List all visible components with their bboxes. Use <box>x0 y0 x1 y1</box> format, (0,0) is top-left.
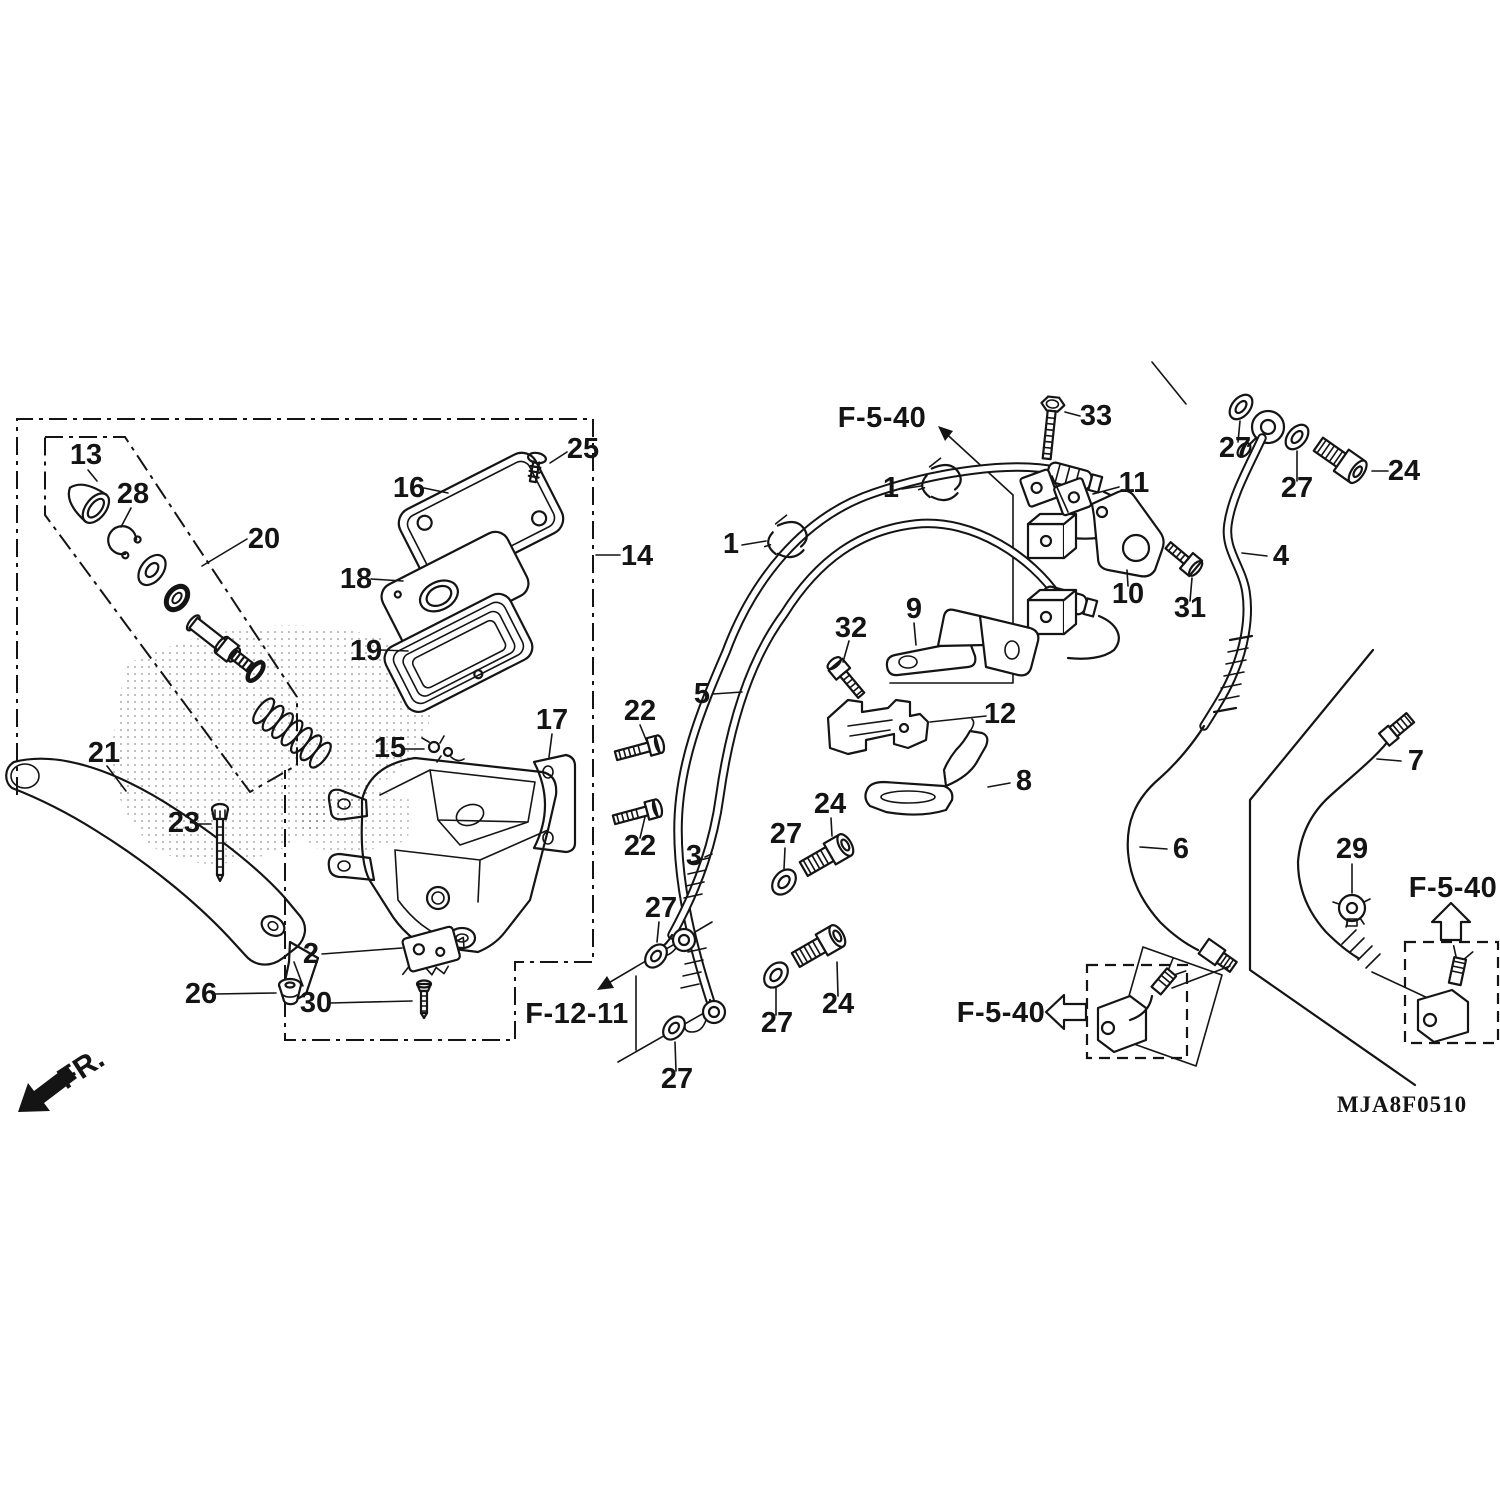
part-callout-27-33[interactable]: 27 <box>645 892 677 924</box>
part-callout-14-5[interactable]: 14 <box>621 540 653 572</box>
bracket-10-drawing <box>1092 491 1164 577</box>
leader-line <box>202 539 247 566</box>
washer-27-d <box>659 1012 690 1043</box>
bolt-31-drawing <box>1162 538 1205 579</box>
leader-line <box>550 452 567 463</box>
pipe-7-top-fitting <box>1379 712 1415 746</box>
master-cylinder-body <box>362 758 557 952</box>
part-callout-18-6[interactable]: 18 <box>340 563 372 595</box>
part-callout-22-10[interactable]: 22 <box>624 695 656 727</box>
joint-block-upper <box>1028 514 1076 558</box>
part-callout-7-41[interactable]: 7 <box>1408 745 1424 777</box>
parts-diagram-page: FR. MJA8F0510 13282016251418191715222221… <box>0 0 1500 1500</box>
diagram-code: MJA8F0510 <box>1337 1092 1467 1117</box>
part-callout-9-21[interactable]: 9 <box>906 593 922 625</box>
sight-glass-inner <box>432 892 444 904</box>
leader-line <box>713 692 742 694</box>
part-callout-28-1[interactable]: 28 <box>117 478 149 510</box>
leader-line <box>831 818 832 836</box>
banjo-detail-left <box>1098 958 1187 1052</box>
leader-line <box>1065 412 1080 416</box>
part-callout-16-3[interactable]: 16 <box>393 472 425 504</box>
oil-bolt-24-mid <box>798 832 857 880</box>
brake-hose-4 <box>1204 438 1262 726</box>
joint-block-lower <box>1028 590 1076 634</box>
brake-pipe-6 <box>1128 726 1204 950</box>
part-callout-4-32[interactable]: 4 <box>1273 540 1289 572</box>
f540-mid-left-block-arrow-icon <box>1046 995 1086 1029</box>
lug-hole-lower <box>338 861 350 871</box>
part-callout-24-35[interactable]: 24 <box>814 788 846 820</box>
bolt-32-drawing <box>825 654 868 701</box>
part-callout-24-37[interactable]: 24 <box>822 988 854 1020</box>
pipe-7-spring-ticks <box>1342 930 1380 968</box>
lever-pivot-hole <box>258 912 288 940</box>
part-callout-8-24[interactable]: 8 <box>1016 765 1032 797</box>
leader-line <box>549 734 552 757</box>
screw-30-drawing <box>417 981 431 1019</box>
leader-line <box>784 848 785 869</box>
reservoir-port <box>453 801 486 829</box>
primary-seal-drawing <box>162 582 192 614</box>
top-right-guide-line <box>1152 362 1186 404</box>
hose-5-banjo-end <box>685 1000 725 1032</box>
part-callout-24-31[interactable]: 24 <box>1388 455 1420 487</box>
leader-line <box>1377 759 1401 761</box>
part-callout-19-7[interactable]: 19 <box>350 635 382 667</box>
leader-line <box>930 716 986 722</box>
banjo-detail-right <box>1418 946 1473 1042</box>
washer-27-b <box>1281 420 1313 453</box>
leader-line <box>1140 847 1167 849</box>
part-callout-33-25[interactable]: 33 <box>1080 400 1112 432</box>
clamp-screw-22-upper <box>614 734 666 764</box>
leader-line <box>1242 553 1267 556</box>
part-callout-27-36[interactable]: 27 <box>761 1007 793 1039</box>
oil-bolt-24-top <box>1311 434 1370 486</box>
clip-29-drawing <box>1333 895 1370 927</box>
part-callout-5-19[interactable]: 5 <box>694 678 710 710</box>
part-callout-27-38[interactable]: 27 <box>661 1063 693 1095</box>
leader-line <box>322 948 402 954</box>
part-callout-21-12[interactable]: 21 <box>88 737 120 769</box>
figure-ref-f-5-40-0[interactable]: F-5-40 <box>838 402 926 434</box>
figure-ref-f-5-40-3[interactable]: F-5-40 <box>1409 872 1497 904</box>
lever-tip <box>11 764 39 788</box>
washer-27-a <box>1225 390 1257 423</box>
part-callout-25-4[interactable]: 25 <box>567 433 599 465</box>
leader-line <box>215 993 276 994</box>
lower-right-boundary-line <box>1250 650 1415 1085</box>
washer-drawing <box>133 550 171 590</box>
f540-right-up-block-arrow-icon <box>1432 903 1470 940</box>
part-callout-27-29[interactable]: 27 <box>1219 432 1251 464</box>
shading-texture-2 <box>300 790 410 851</box>
part-callout-2-14[interactable]: 2 <box>303 938 319 970</box>
part-callout-30-16[interactable]: 30 <box>300 987 332 1019</box>
figure-ref-f-5-40-2[interactable]: F-5-40 <box>957 997 1045 1029</box>
leader-line <box>914 623 916 645</box>
lever-pivot-hole-inner <box>267 920 280 932</box>
parts-diagram-canvas: FR. MJA8F0510 13282016251418191715222221… <box>0 0 1500 1500</box>
leader-line <box>657 922 659 942</box>
bolt-33-drawing <box>1036 396 1065 460</box>
fr-direction-indicator: FR. <box>18 1042 110 1112</box>
figure-ref-f-12-11-1[interactable]: F-12-11 <box>525 998 628 1030</box>
clamp-12-drawing <box>828 700 928 754</box>
part-callout-3-20[interactable]: 3 <box>686 840 702 872</box>
pipe-7-connector-line <box>1372 972 1432 1000</box>
part-callout-26-15[interactable]: 26 <box>185 978 217 1010</box>
sight-glass <box>427 887 449 909</box>
part-callout-1-17[interactable]: 1 <box>723 528 739 560</box>
f1211-arrowhead-icon <box>597 976 614 990</box>
part-callout-27-30[interactable]: 27 <box>1281 472 1313 504</box>
part-callout-10-27[interactable]: 10 <box>1112 578 1144 610</box>
part-callout-32-22[interactable]: 32 <box>835 612 867 644</box>
part-callout-1-18[interactable]: 1 <box>883 472 899 504</box>
part-callout-29-40[interactable]: 29 <box>1336 833 1368 865</box>
leader-line <box>640 725 647 742</box>
leader-line <box>88 470 97 481</box>
part-callout-15-9[interactable]: 15 <box>374 732 406 764</box>
part-callout-27-34[interactable]: 27 <box>770 818 802 850</box>
master-cylinder-lower-detail <box>395 830 548 940</box>
clip-15-drawing <box>422 736 464 762</box>
leader-line <box>843 641 849 662</box>
washer-27-f <box>767 865 800 899</box>
part-callout-6-39[interactable]: 6 <box>1173 833 1189 865</box>
circlip-28-drawing <box>103 521 143 561</box>
boot-13-drawing <box>59 474 114 527</box>
part-callout-31-28[interactable]: 31 <box>1174 592 1206 624</box>
grommet-26-drawing <box>279 979 301 1004</box>
part-callout-12-23[interactable]: 12 <box>984 698 1016 730</box>
leader-line <box>330 1001 412 1003</box>
part-callout-22-11[interactable]: 22 <box>624 830 656 862</box>
leader-line <box>988 783 1010 787</box>
leader-line <box>742 541 766 545</box>
part-callout-13-0[interactable]: 13 <box>70 439 102 471</box>
leader-line <box>381 650 408 651</box>
part-callout-11-26[interactable]: 11 <box>1119 467 1150 499</box>
part-callout-23-13[interactable]: 23 <box>168 807 200 839</box>
clamp-screw-22-lower <box>612 798 664 828</box>
part-callout-20-2[interactable]: 20 <box>248 523 280 555</box>
part-callout-17-8[interactable]: 17 <box>536 704 568 736</box>
leader-line <box>121 508 131 527</box>
oil-bolt-24-low <box>790 923 849 971</box>
washer-27-e <box>759 958 792 992</box>
washer-27-c <box>641 940 672 971</box>
